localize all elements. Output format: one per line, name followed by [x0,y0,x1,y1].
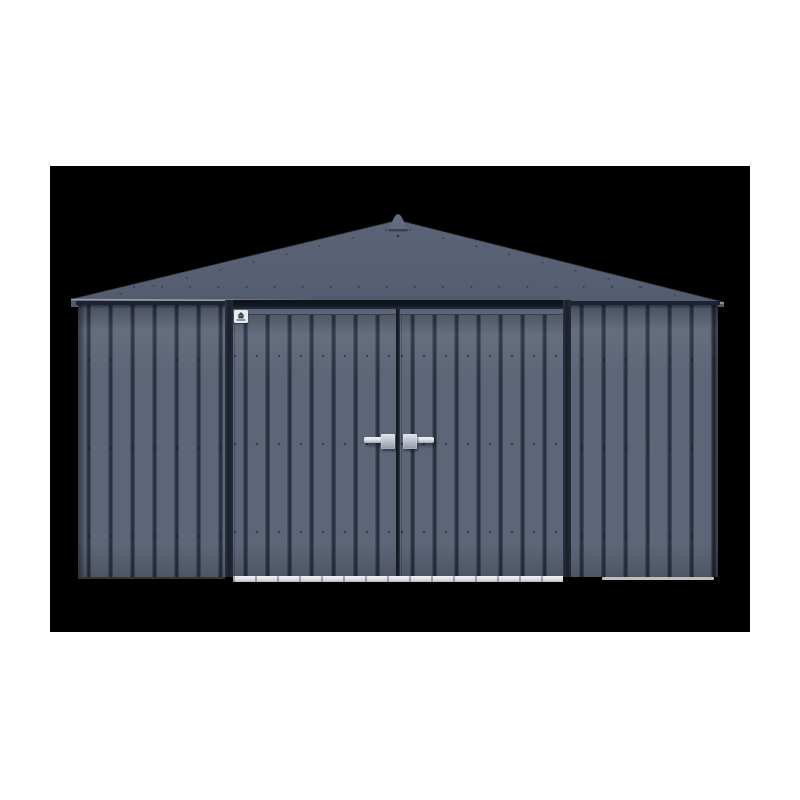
roof-finial-base [389,229,408,231]
door-frame-left [225,300,233,577]
manufacturer-badge [234,310,248,323]
door-handle-lever-right [416,437,434,443]
page-background: { "meta": { "alt": "Front view product p… [0,0,800,800]
door-center-seam [396,309,400,576]
roof-finial-rivet [397,235,400,238]
product-photo [50,166,750,632]
door-handle-plate-right [403,434,417,449]
door-header-trim [225,300,571,309]
door-frame-right [563,300,571,577]
badge-logo-icon [235,311,247,322]
wall-panel-right [571,305,718,577]
ground-highlight-left [78,577,225,579]
ground-highlight-right [602,577,714,580]
door-handle-plate-left [381,434,395,449]
door-sill-strip [233,576,563,582]
door-handle-lever-left [364,437,382,443]
wall-panel-left [78,305,225,577]
roof-panel [71,220,724,307]
